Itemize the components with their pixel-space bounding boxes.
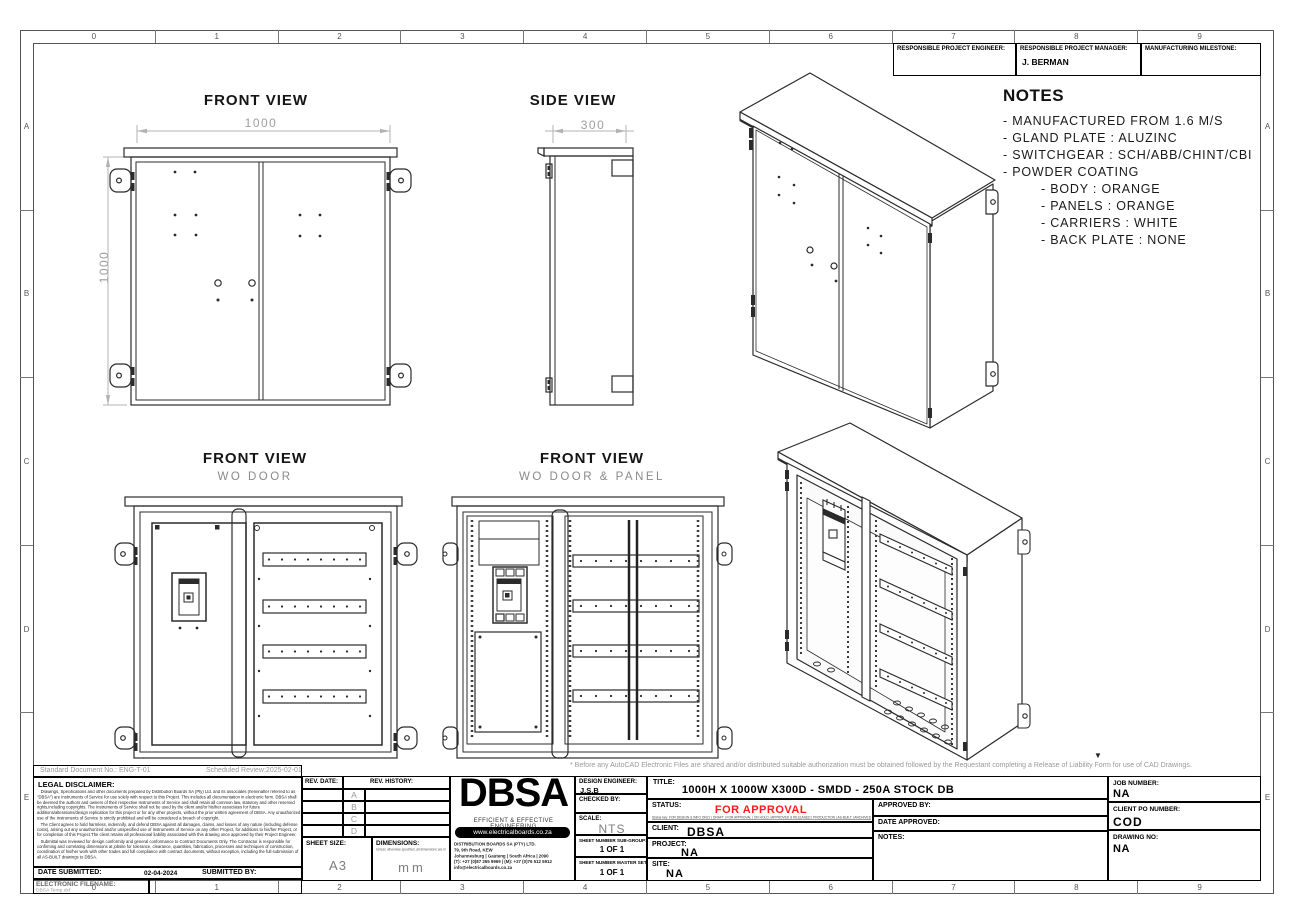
grid-col-label-top: 1 [156,30,279,43]
grid-row-label-left: E [20,713,33,881]
sheet-sub-group-value: 1 OF 1 [576,845,648,854]
note-line: - POWDER COATING [1003,164,1255,181]
manufacturing-milestone-label: MANUFACTURING MILESTONE: [1145,46,1237,52]
client-po-label: CLIENT PO NUMBER: [1113,806,1180,813]
project-cell: PROJECT: NA [647,838,873,858]
legal-paragraph-2: The Client agrees to hold harmless, inde… [37,823,301,839]
grid-row-label-right: D [1261,546,1274,714]
grid-col-label-bottom: 9 [1138,881,1261,894]
legal-paragraph-3: Submittal was reviewed for design confor… [37,840,301,861]
rev-row-history [365,789,450,801]
rev-row-history [365,801,450,813]
wo-door-frame [115,497,417,758]
isometric-open-drawing [745,412,1065,774]
isometric-closed-drawing [700,58,1010,448]
status-options-note: Status key: FOR DESIGN & INFO ONLY | DRA… [652,816,862,820]
grid-col-label-top: 4 [524,30,647,43]
client-po-cell: CLIENT PO NUMBER: COD [1108,802,1261,830]
grid-col-label-bottom: 7 [893,881,1016,894]
front-cabinet-outline [110,148,411,405]
sheet-master-set-cell: SHEET NUMBER MASTER SET: 1 OF 1 [575,857,647,881]
dimensions-cell: DIMENSIONS: Unless otherwise specified, … [372,837,450,881]
dimensions-label: DIMENSIONS: [376,840,419,847]
front-view-title: FRONT VIEW [146,92,366,109]
date-approved-label: DATE APPROVED: [878,819,940,826]
wo-door-details [134,525,397,751]
notes-block: NOTES - MANUFACTURED FROM 1.6 M/S - GLAN… [1003,86,1255,249]
responsible-manager-label: RESPONSIBLE PROJECT MANAGER: [1020,46,1128,52]
sheet-master-set-value: 1 OF 1 [576,868,648,877]
grid-row-label-left: A [20,43,33,211]
drawing-no-value: NA [1113,843,1130,855]
status-cell: STATUS: FOR APPROVAL Status key: FOR DES… [647,799,873,822]
notes-title: NOTES [1003,86,1255,106]
job-number-value: NA [1113,788,1130,800]
legal-paragraph-1: Drawings, Specifications and other docum… [37,790,301,822]
grid-row-label-right: B [1261,211,1274,379]
side-dimension-lines [545,125,634,143]
sheet-sub-group-label: SHEET NUMBER SUB-GROUP: [579,838,647,843]
grid-col-label-top: 8 [1015,30,1138,43]
wo-door-panel-frame [443,497,732,758]
note-subline: - BACK PLATE : NONE [1041,232,1255,249]
approval-notes-label: NOTES: [878,834,904,841]
electronic-filename-label: ELECTRONIC FILENAME: [36,881,115,888]
title-value: 1000H X 1000W X300D - SMDD - 250A STOCK … [658,784,978,796]
title-cell: TITLE: 1000H X 1000W X300D - SMDD - 250A… [647,776,1108,799]
note-line: - GLAND PLATE : ALUZINC [1003,130,1255,147]
scale-cell: SCALE: NTS [575,813,647,835]
date-submitted-value: 02-04-2024 [144,870,177,877]
grid-row-label-right: A [1261,43,1274,211]
electronic-filename-cell: ELECTRONIC FILENAME: DBSA Temp.dxf [33,879,149,894]
iso-closed-body [740,73,998,428]
rev-row-date [302,813,343,825]
sheet-sub-group-cell: SHEET NUMBER SUB-GROUP: 1 OF 1 [575,835,647,857]
approved-by-cell: APPROVED BY: [873,799,1108,816]
rev-row-letter: A [343,789,365,801]
side-view-title: SIDE VIEW [483,92,663,109]
rev-row-letter: C [343,813,365,825]
side-view-drawing [515,112,660,412]
brand-website-pill: www.electricalboards.co.za [455,827,570,838]
fold-mark-icon: ▼ [1094,751,1102,760]
checked-by-cell: CHECKED BY: [575,794,647,813]
wo-door-panel-drawing [443,487,743,772]
electronic-filename-value-cell [149,879,302,894]
rev-date-label: REV. DATE: [305,779,338,785]
dimensions-note: Unless otherwise specified, all dimensio… [376,848,451,852]
rev-history-label: REV. HISTORY: [370,779,413,785]
site-cell: SITE: NA [647,858,873,881]
iso-open-breaker [823,499,845,570]
front-view-drawing [95,112,430,412]
submitted-by-label: SUBMITTED BY: [202,869,256,876]
grid-col-label-top: 7 [893,30,1016,43]
brand-email: info@electricalboards.co.za [454,866,578,872]
grid-col-label-top: 9 [1138,30,1261,43]
manufacturing-milestone-cell: MANUFACTURING MILESTONE: [1141,43,1261,76]
rev-row-date [302,789,343,801]
grid-col-label-bottom: 8 [1015,881,1138,894]
wo-door-panel-view-subtitle: WO DOOR & PANEL [472,471,712,483]
site-label: SITE: [652,861,670,868]
grid-ruler-left: ABCDE [20,43,33,881]
responsible-manager-cell: RESPONSIBLE PROJECT MANAGER: J. BERMAN [1016,43,1141,76]
grid-col-label-bottom: 5 [647,881,770,894]
grid-col-label-bottom: 3 [401,881,524,894]
rev-row-letter: B [343,801,365,813]
wo-door-panel-center-rails [629,520,637,740]
legal-disclaimer-cell: LEGAL DISCLAIMER: Drawings, Specificatio… [33,777,302,867]
scheduled-review: Scheduled Review:2025-02-01 [206,767,302,774]
responsible-manager-value: J. BERMAN [1022,57,1069,67]
brand-logo: DBSA [451,771,576,816]
rev-row-letter: D [343,825,365,837]
wo-door-view-title: FRONT VIEW [145,450,365,467]
dimensions-unit: mm [373,860,451,875]
note-line: - MANUFACTURED FROM 1.6 M/S [1003,113,1255,130]
scale-value: NTS [576,822,648,836]
drawing-sheet: 0123456789 0123456789 ABCDE ABCDE RESPON… [0,0,1295,920]
side-cabinet-outline [538,148,633,405]
cad-release-note: * Before any AutoCAD Electronic Files ar… [570,762,1262,769]
drawing-no-label: DRAWING NO: [1113,834,1158,841]
grid-row-label-left: B [20,211,33,379]
brand-cell: DBSA EFFICIENT & EFFECTIVE ENGINEERING w… [450,776,575,881]
design-engineer-label: DESIGN ENGINEER: [579,779,637,785]
grid-col-label-top: 2 [279,30,402,43]
grid-col-label-bottom: 4 [524,881,647,894]
design-engineer-cell: DESIGN ENGINEER: J.S.B [575,776,647,794]
client-po-value: COD [1113,815,1143,829]
sheet-size-label: SHEET SIZE: [306,840,346,847]
wo-door-panel-perforated-rails [472,520,698,740]
rev-date-header: REV. DATE: [302,776,343,789]
standard-document-no: Standard Document No.: ENG-T-01 [40,767,151,774]
date-approved-cell: DATE APPROVED: [873,816,1108,831]
checked-by-label: CHECKED BY: [579,797,620,803]
grid-col-label-top: 5 [647,30,770,43]
rev-row-date [302,801,343,813]
legal-disclaimer-title: LEGAL DISCLAIMER: [38,780,115,789]
front-hole-dots [131,171,390,386]
grid-col-label-top: 6 [770,30,893,43]
document-number-strip: Standard Document No.: ENG-T-01 Schedule… [33,765,302,777]
grid-col-label-top: 0 [33,30,156,43]
sheet-size-cell: SHEET SIZE: A3 [302,837,372,881]
responsible-engineer-label: RESPONSIBLE PROJECT ENGINEER: [897,46,1005,52]
grid-row-label-right: E [1261,713,1274,881]
rev-history-header: REV. HISTORY: [343,776,450,789]
site-value: NA [666,868,684,880]
grid-ruler-right: ABCDE [1261,43,1274,881]
note-subline: - BODY : ORANGE [1041,181,1255,198]
sheet-size-value: A3 [303,858,373,873]
job-number-cell: JOB NUMBER: NA [1108,776,1261,802]
grid-col-label-bottom: 6 [770,881,893,894]
client-cell: CLIENT: DBSA [647,822,873,838]
front-dimension-lines [103,125,390,405]
wo-door-view-subtitle: WO DOOR [145,471,365,483]
job-number-label: JOB NUMBER: [1113,780,1159,787]
grid-row-label-left: D [20,546,33,714]
status-value: FOR APPROVAL [648,804,874,816]
wo-door-drawing [108,487,428,772]
sheet-master-set-label: SHEET NUMBER MASTER SET: [579,860,648,865]
drawing-no-cell: DRAWING NO: NA [1108,830,1261,881]
rev-row-history [365,813,450,825]
brand-website: www.electricalboards.co.za [473,829,551,836]
grid-ruler-top: 0123456789 [33,30,1261,43]
electronic-filename-value: DBSA Temp.dxf [36,888,70,894]
grid-row-label-left: C [20,378,33,546]
date-submitted-label: DATE SUBMITTED: [38,869,102,876]
note-subline: - PANELS : ORANGE [1041,198,1255,215]
note-line: - SWITCHGEAR : SCH/ABB/CHINT/CBI [1003,147,1255,164]
wo-door-panel-view-title: FRONT VIEW [482,450,702,467]
grid-col-label-top: 3 [401,30,524,43]
wo-door-panel-details [443,552,726,740]
date-submitted-row: DATE SUBMITTED: 02-04-2024 SUBMITTED BY: [33,867,302,879]
client-label: CLIENT: [652,825,679,832]
note-subline: - CARRIERS : WHITE [1041,215,1255,232]
rev-row-date [302,825,343,837]
rev-row-history [365,825,450,837]
grid-row-label-right: C [1261,378,1274,546]
client-value: DBSA [687,825,725,839]
approved-by-label: APPROVED BY: [878,802,931,809]
approval-notes-cell: NOTES: [873,831,1108,881]
